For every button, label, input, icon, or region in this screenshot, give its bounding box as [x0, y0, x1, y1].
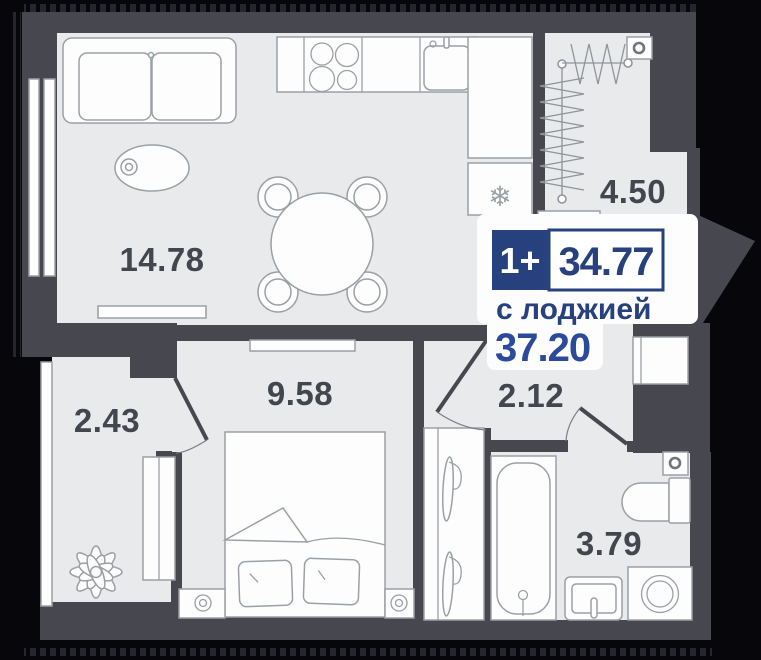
hallway-cabinet	[633, 337, 688, 384]
sofa	[63, 38, 236, 123]
drying-balcony-area-label: 4.50	[600, 173, 666, 210]
bathroom-vent-icon	[663, 452, 688, 475]
toilet	[622, 478, 690, 523]
fridge: ❄	[468, 163, 532, 215]
living-window-pane-inner	[44, 79, 55, 276]
living-kitchen-area-label: 14.78	[119, 241, 204, 278]
counter-column	[468, 37, 532, 158]
wall-door-chunk	[130, 323, 177, 378]
pillow	[238, 560, 293, 607]
badge-area-value: 34.77	[558, 240, 653, 284]
wall-balcony-right	[650, 12, 696, 152]
tv-console	[98, 306, 206, 318]
living-window-pane-outer	[29, 79, 39, 276]
loggia-wardrobe	[143, 457, 175, 580]
wall-bath-right	[690, 452, 711, 622]
snowflake-icon: ❄	[488, 180, 511, 213]
bedroom-shelf	[250, 340, 355, 351]
bathroom-area-label: 3.79	[576, 525, 642, 562]
pillow	[303, 558, 360, 605]
with-loggia-value: 37.20	[495, 326, 590, 370]
hallway-area-label: 2.12	[498, 377, 564, 414]
bathtub	[491, 456, 556, 620]
hallway-closet	[424, 428, 484, 620]
bedroom-area-label: 9.58	[267, 375, 333, 412]
wall-bedroom-closet	[413, 340, 424, 620]
dining-table	[271, 193, 373, 295]
wall-balcony-left	[533, 12, 545, 215]
floor-plan-svg: ❄	[0, 0, 761, 660]
bed	[225, 432, 385, 617]
wall-bath-top-left	[491, 440, 568, 452]
wall-bedroom-top	[175, 325, 490, 341]
loggia-window	[41, 362, 52, 606]
plant-icon	[70, 546, 122, 598]
nightstand-right	[385, 589, 414, 618]
floor-plan: ❄	[0, 0, 761, 660]
wall-bottom-right	[484, 620, 711, 640]
nightstand-left	[179, 589, 225, 618]
wall-balcony-step	[687, 148, 700, 218]
washing-machine	[628, 567, 692, 620]
wall-bay-window	[696, 214, 755, 334]
wall-bottom-left	[40, 602, 182, 640]
coffee-table	[115, 145, 189, 191]
wall-top	[22, 12, 696, 33]
dining-table-with-chairs	[258, 177, 387, 312]
badge-type-label: 1+	[499, 240, 540, 281]
bathroom-sink	[565, 577, 622, 620]
loggia-area-label: 2.43	[74, 402, 140, 439]
with-loggia-label: с лоджией	[496, 293, 652, 326]
balcony-vent-icon	[627, 37, 652, 59]
